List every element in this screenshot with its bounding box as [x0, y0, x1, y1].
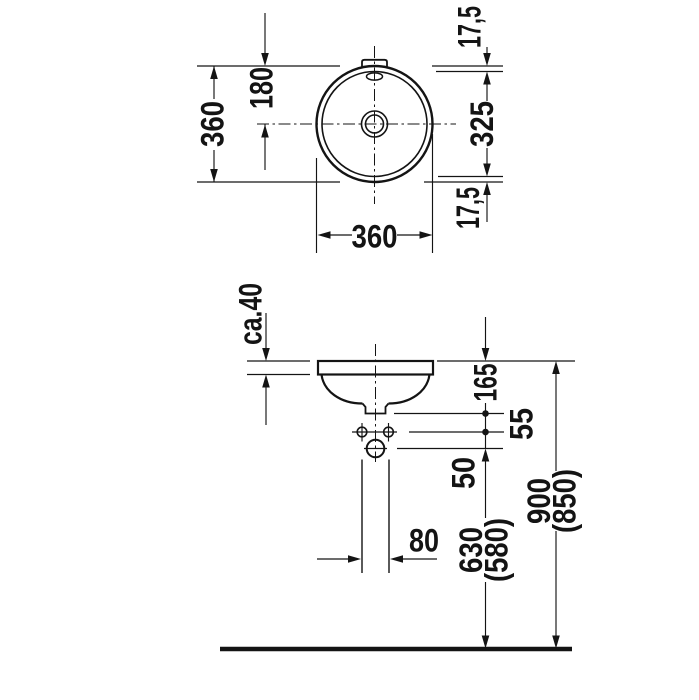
- bowl-profile-left: [322, 375, 363, 404]
- dim-label-overall-height: 360: [195, 101, 231, 147]
- dim-label-counter-thickness: ca.40: [233, 283, 269, 345]
- dim-label-holes-to-trap: 50: [446, 457, 482, 489]
- front-view: ca.40 165 55 50 80: [220, 283, 583, 649]
- dim-overall-height: 360: [195, 66, 231, 182]
- dim-rim-to-outlet: 165: [468, 317, 504, 414]
- dim-counter-thickness: ca.40: [233, 283, 270, 425]
- dim-label-trap-to-floor-variant: (580): [479, 518, 515, 582]
- dim-label-rim-to-outlet: 165: [468, 364, 504, 402]
- dim-center-from-top: 180: [244, 13, 280, 170]
- dim-rim-to-floor: 900 (850): [521, 361, 583, 649]
- dim-label-rim-to-floor-variant: (850): [547, 469, 583, 533]
- dim-label-outlet-to-holes: 55: [504, 408, 540, 440]
- top-view: 360 180 17,5 325 17,5: [195, 6, 503, 255]
- dim-inner-diameter: 325: [464, 72, 500, 177]
- technical-drawing-canvas: 360 180 17,5 325 17,5: [0, 0, 699, 700]
- dim-label-overall-width: 360: [352, 219, 398, 255]
- dim-outlet-to-holes: 55: [482, 408, 539, 440]
- dim-holes-to-trap: 50: [446, 432, 490, 489]
- dim-overall-width: 360: [318, 219, 433, 255]
- dim-rim-offset-top: 17,5: [452, 6, 491, 66]
- dim-label-pipe-width: 80: [409, 523, 439, 559]
- drawing-sheet: 360 180 17,5 325 17,5: [0, 0, 699, 700]
- dim-pipe-width: 80: [317, 523, 439, 563]
- dim-label-inner-diameter: 325: [464, 101, 500, 147]
- dim-label-rim-offset-bottom: 17,5: [450, 187, 486, 229]
- dim-label-rim-offset-top: 17,5: [452, 6, 488, 48]
- dim-label-center-from-top: 180: [244, 67, 280, 109]
- dim-rim-offset-bottom: 17,5: [450, 182, 491, 229]
- bowl-profile-right: [389, 375, 430, 404]
